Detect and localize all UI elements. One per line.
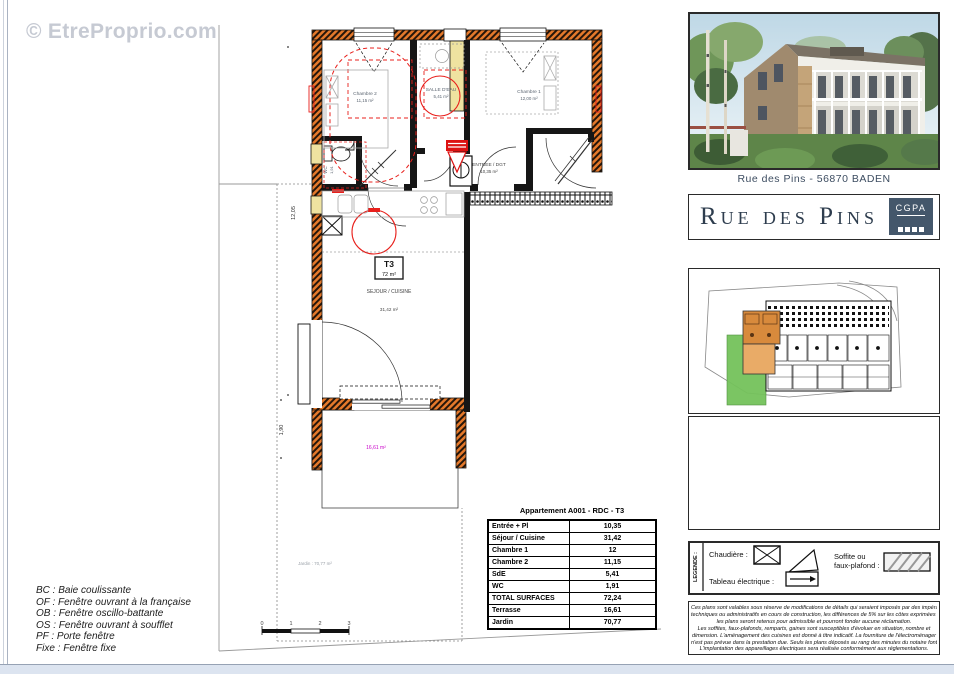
dim-12-05: 12,05 (291, 206, 297, 220)
scale-1: 1 (289, 621, 292, 627)
row-label: Jardin (488, 617, 569, 630)
soffite-icon (884, 553, 930, 571)
label-entree-area: 10,35 m² (480, 169, 498, 174)
label-salle-eau: SALLE D'EAU (426, 87, 457, 93)
label-chambre2-area: 11,15 m² (356, 98, 374, 103)
abbrev-pf: PF : Porte fenêtre (36, 631, 191, 643)
label-chambre2: Chambre 2 (353, 91, 377, 97)
disclaimer-line: techniques ou administratifs en cours de… (691, 612, 937, 619)
row-label: Entrée + Pl (488, 520, 569, 533)
soffite-label-line2: faux-plafond : (834, 561, 879, 570)
soffite-label-line1: Soffite ou (834, 552, 866, 561)
project-title-box: Rue des Pins CGPA (688, 194, 940, 240)
tableau-label: Tableau électrique : (709, 577, 774, 586)
disclaimer-line: n'est pas prévue dans la prestation due.… (691, 640, 937, 647)
type-box: T3 72 m² (375, 257, 403, 279)
abbrev-os: OS : Fenêtre ouvrant à soufflet (36, 620, 191, 632)
disclaimer-line: dimension. L'aménagement des cuisines es… (691, 633, 937, 640)
cgpa-logo-square (905, 227, 910, 232)
row-label: Chambre 1 (488, 545, 569, 557)
baie-coulissante (352, 398, 430, 410)
photo-caption: Rue des Pins - 56870 BADEN (688, 173, 940, 185)
cgpa-logo-square (898, 227, 903, 232)
empty-panel (688, 416, 940, 530)
table-row-total: TOTAL SURFACES72,24 (488, 593, 656, 605)
terrace-slab (322, 410, 458, 508)
row-label: SdE (488, 569, 569, 581)
disclaimer-line: les plans seront retenus pour admissible… (691, 619, 937, 626)
site-plan-box (688, 268, 940, 414)
tableau-electrique-icon (786, 550, 818, 586)
dimension-labels: 12,05 1,90 (279, 46, 297, 459)
row-value: 1,91 (569, 581, 656, 593)
site-building-units-bottom (768, 365, 889, 389)
label-salle-eau-area: 5,41 m² (434, 94, 449, 99)
row-label: WC (488, 581, 569, 593)
chaudiere-icon (754, 546, 780, 564)
wc-fixtures (324, 141, 354, 161)
building-render-illustration (690, 14, 940, 169)
type-area: 72 m² (382, 272, 396, 278)
table-row: WC1,91 (488, 581, 656, 593)
site-unit-highlight-top (743, 311, 780, 344)
site-building-units-top (768, 303, 889, 329)
site-building-units-mid (768, 335, 889, 361)
cgpa-logo: CGPA (889, 198, 933, 235)
label-wc: WC (323, 166, 328, 173)
scale-bar: 0 1 2 3 (260, 621, 350, 635)
row-label: Terrasse (488, 605, 569, 617)
abbrev-fixe: Fixe : Fenêtre fixe (36, 643, 191, 655)
abbrev-ob: OB : Fenêtre oscillo-battante (36, 608, 191, 620)
row-label: Séjour / Cuisine (488, 533, 569, 545)
table-row: Jardin70,77 (488, 617, 656, 630)
terrasse-area-label: 16,61 m² (366, 445, 386, 451)
abbrev-bc: BC : Baie coulissante (36, 585, 191, 597)
table-row: Chambre 211,15 (488, 557, 656, 569)
cgpa-logo-text: CGPA (889, 203, 933, 213)
legend-content: LEGENDE : Chaudière : Tableau électrique… (690, 543, 936, 591)
table-row: Séjour / Cuisine31,42 (488, 533, 656, 545)
jardin-area-label: Jardin : 70,77 m² (298, 561, 332, 566)
porch-cell-wall (470, 192, 612, 205)
row-value: 12 (569, 545, 656, 557)
abbrev-of: OF : Fenêtre ouvrant à la française (36, 597, 191, 609)
row-value: 10,35 (569, 520, 656, 533)
row-label: Chambre 2 (488, 557, 569, 569)
disclaimer-line: L'implantation des appareillages électri… (691, 646, 937, 653)
project-title: Rue des Pins (699, 195, 879, 239)
label-sejour: SEJOUR / CUISINE (367, 289, 412, 295)
disclaimer-line: Ces plans sont valables sous réserve de … (691, 605, 937, 612)
table-row: Chambre 112 (488, 545, 656, 557)
row-value: 72,24 (569, 593, 656, 605)
disclaimer-line: Les soffites, faux-plafonds, remparts, g… (691, 626, 937, 633)
type-label: T3 (384, 259, 394, 269)
row-label: TOTAL SURFACES (488, 593, 569, 605)
chaudiere-symbol (322, 216, 342, 235)
window-chambre1 (500, 28, 546, 72)
label-chambre1-area: 12,00 m² (520, 96, 538, 101)
cgpa-logo-rule (897, 215, 925, 216)
table-row: Entrée + Pl10,35 (488, 520, 656, 533)
legend-box: LEGENDE : Chaudière : Tableau électrique… (688, 541, 940, 595)
row-value: 70,77 (569, 617, 656, 630)
table-row: SdE5,41 (488, 569, 656, 581)
cgpa-logo-square (912, 227, 917, 232)
row-value: 11,15 (569, 557, 656, 569)
site-plan-drawing (689, 269, 939, 413)
chaudiere-label: Chaudière : (709, 550, 748, 559)
cgpa-logo-square (919, 227, 924, 232)
window-abbreviations: BC : Baie coulissante OF : Fenêtre ouvra… (36, 585, 191, 654)
building-photo (688, 12, 940, 170)
surface-table: Entrée + Pl10,35 Séjour / Cuisine31,42 C… (487, 519, 657, 630)
label-sejour-area: 31,42 m² (380, 307, 399, 312)
disclaimer-box: Ces plans sont valables sous réserve de … (688, 601, 940, 655)
row-value: 5,41 (569, 569, 656, 581)
row-value: 16,61 (569, 605, 656, 617)
scale-2: 2 (318, 621, 321, 627)
soffite-dashed-zone-bay (340, 386, 440, 399)
surface-table-title: Appartement A001 - RDC - T3 (487, 506, 657, 515)
table-row: Terrasse16,61 (488, 605, 656, 617)
label-wc-area: 1,91 (329, 165, 334, 174)
label-chambre1: Chambre 1 (517, 89, 541, 95)
viewer-bottom-bar (0, 664, 954, 674)
plan-sheet-page: © EtreProprio.com (0, 0, 954, 674)
site-unit-highlight-bottom (743, 344, 775, 374)
legend-title: LEGENDE : (693, 552, 699, 582)
door-swings (360, 137, 596, 226)
surface-table-block: Appartement A001 - RDC - T3 Entrée + Pl1… (487, 506, 657, 630)
row-value: 31,42 (569, 533, 656, 545)
label-entree: ENTREE / DGT (472, 162, 506, 168)
dim-1-90: 1,90 (279, 425, 285, 436)
window-chambre2 (354, 28, 394, 72)
